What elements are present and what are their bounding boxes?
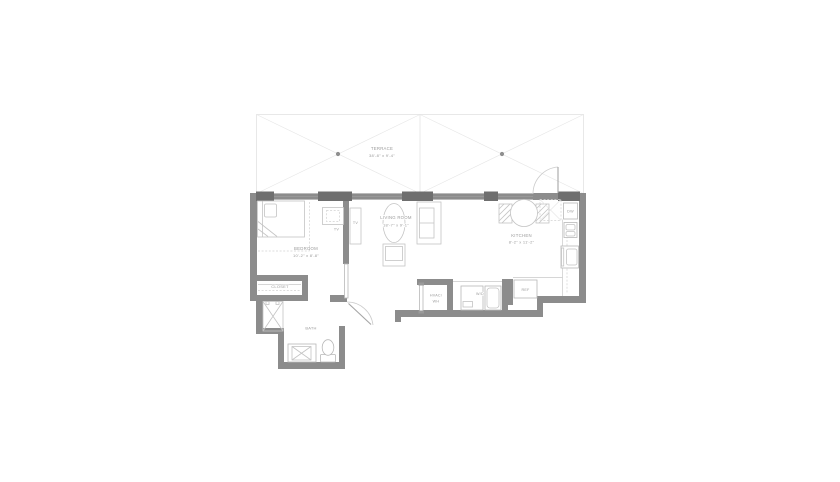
vanity-sink xyxy=(288,344,316,362)
bedroom-door-leaf xyxy=(345,264,349,298)
bedroom-dresser xyxy=(323,208,344,225)
washer xyxy=(461,286,483,310)
wall-segment xyxy=(250,295,308,301)
wall-segment xyxy=(447,279,453,317)
terrace-drain-right xyxy=(500,152,504,156)
bath-label: BATH xyxy=(305,326,316,331)
wall-segment xyxy=(395,310,401,322)
wall-segment xyxy=(508,279,513,305)
living-room-label: LIVING ROOM xyxy=(380,215,412,220)
window-pier xyxy=(318,192,352,202)
toilet xyxy=(321,340,336,362)
dishwasher-label: DW xyxy=(567,210,574,214)
floor-plan-page: TERRACE 38'-8" x 9'-4" LIVING ROOM 18'-7… xyxy=(0,0,840,482)
dryer xyxy=(485,286,501,310)
dining-table xyxy=(511,200,538,227)
living-room-furniture xyxy=(383,202,441,266)
terrace-drain-left xyxy=(336,152,340,156)
bedroom-label: BEDROOM xyxy=(294,246,318,251)
wall-segment xyxy=(537,296,543,317)
wall-segment xyxy=(395,310,543,317)
refrigerator-label: REF xyxy=(521,288,530,292)
wall-segment xyxy=(278,362,345,369)
living-room-dimensions: 18'-7" x 9'-1" xyxy=(383,223,409,228)
washer-dryer-label: W/D xyxy=(476,292,484,296)
wall-segment xyxy=(579,193,586,303)
shower xyxy=(263,302,283,332)
kitchen-dimensions: 8'-2" x 11'-2" xyxy=(509,240,535,245)
window-pier xyxy=(484,192,498,202)
wall-segment xyxy=(250,275,308,281)
floor-plan: TERRACE 38'-8" x 9'-4" LIVING ROOM 18'-7… xyxy=(0,0,840,482)
window-pier xyxy=(402,192,433,202)
tv-living-label: TV xyxy=(353,221,359,225)
wall-segment xyxy=(537,296,586,303)
hvac-door-leaf xyxy=(419,283,425,314)
sofa xyxy=(417,202,441,244)
kitchen-sink xyxy=(564,223,577,238)
closet-label: CLOSET xyxy=(271,284,289,289)
coffee-table xyxy=(383,244,405,266)
terrace-dimensions: 38'-8" x 9'-4" xyxy=(369,153,395,158)
window-pier xyxy=(256,192,274,202)
dining-chair-left xyxy=(499,204,512,223)
tv-bedroom-label: TV xyxy=(334,228,340,232)
wall-segment xyxy=(339,326,345,369)
hvac-label-line1: HVAC/ xyxy=(430,294,443,298)
kitchen-label: KITCHEN xyxy=(511,233,532,238)
bed xyxy=(258,201,305,237)
terrace-label: TERRACE xyxy=(371,146,393,151)
wall-segment xyxy=(502,279,508,317)
upper-cabinet xyxy=(540,200,561,221)
hvac-label-line2: WH xyxy=(433,300,440,304)
terrace xyxy=(257,115,584,194)
wall-segment xyxy=(250,193,257,301)
window-pier xyxy=(558,192,580,202)
bedroom-dimensions: 10'-2" x 8'-8" xyxy=(293,253,319,258)
stove xyxy=(561,246,579,268)
living-tv-console xyxy=(350,208,361,244)
entry-door-swing xyxy=(347,302,373,325)
